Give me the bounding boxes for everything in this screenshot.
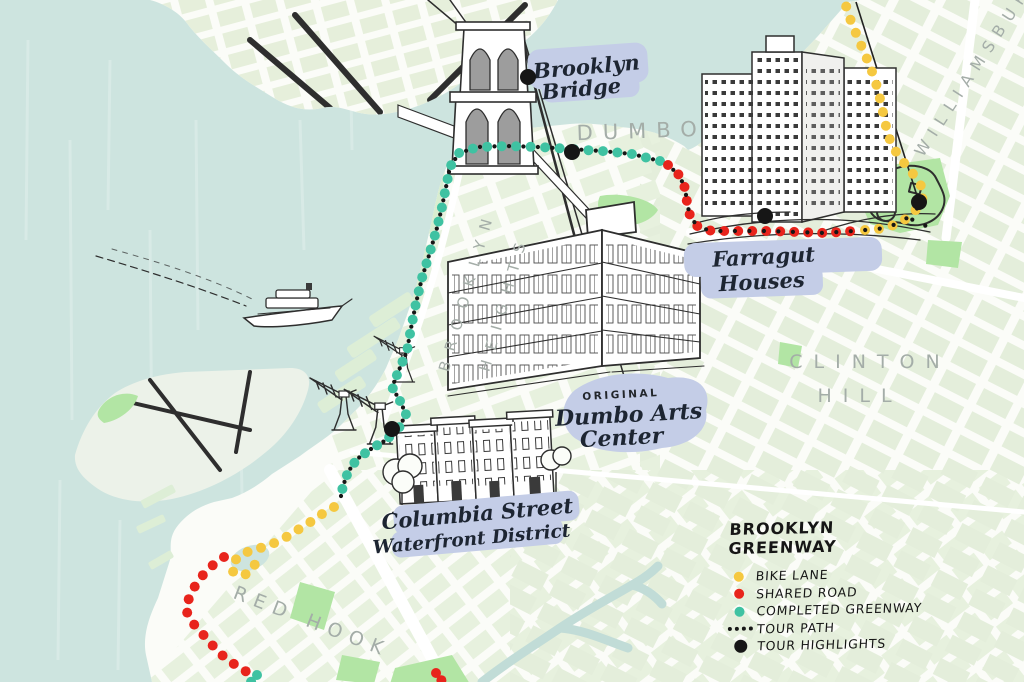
legend-title: BROOKLYN GREENWAY: [728, 516, 931, 558]
dumbo-neighborhood-label: DUMBO: [576, 117, 707, 146]
svg-text:Center: Center: [579, 423, 665, 453]
svg-text:HILL: HILL: [817, 385, 902, 407]
svg-text:Houses: Houses: [717, 267, 805, 297]
shared-road-dot-icon: [734, 589, 744, 599]
tour-path-dots-icon: [723, 627, 757, 632]
bike-lane-dot-icon: [734, 571, 744, 581]
tour-highlights-dot-icon: [734, 640, 747, 653]
clinton-hill-label: CLINTON: [789, 351, 950, 373]
illustrated-brooklyn-greenway-map: Brooklyn Bridge Farragut Houses ORIGINAL…: [0, 0, 1024, 682]
map-legend: BROOKLYN GREENWAY BIKE LANE SHARED ROAD …: [715, 516, 933, 656]
completed-greenway-dot-icon: [734, 606, 744, 616]
